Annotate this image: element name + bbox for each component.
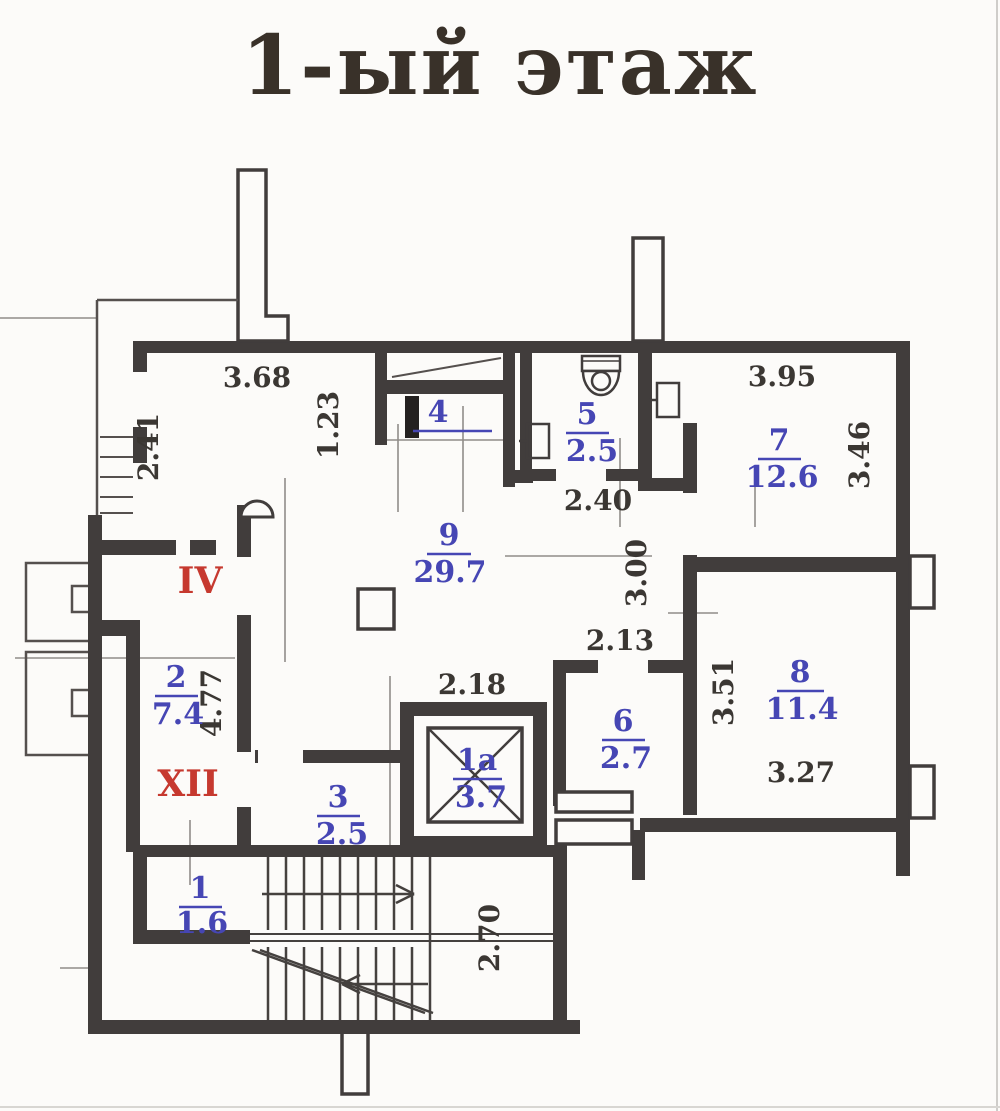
svg-text:12.6: 12.6: [745, 460, 818, 495]
entry-stub: [342, 1034, 368, 1094]
wall: [503, 353, 515, 487]
wall: [88, 1020, 580, 1034]
dimension-label: 2.70: [473, 904, 506, 972]
wall: [532, 469, 556, 481]
room-label-7: 7 12.6: [745, 423, 818, 495]
staircase: [250, 857, 553, 1020]
dimension-label: 3.95: [748, 360, 816, 393]
wall: [520, 351, 532, 481]
balcony-tab: [910, 556, 934, 608]
wall: [638, 351, 652, 490]
exterior-steps: [100, 437, 133, 513]
wall: [896, 341, 910, 876]
zone-label-vestibule: IV: [178, 560, 224, 602]
room-label-6: 6 2.7: [600, 704, 652, 776]
vent-shaft: [556, 820, 632, 844]
scan-edge: [996, 0, 998, 1111]
room-label-8: 8 11.4: [765, 655, 838, 727]
svg-text:4: 4: [428, 395, 449, 430]
column: [358, 589, 394, 629]
floor-plan-page: 1-ый этаж: [0, 0, 1000, 1111]
svg-text:2.7: 2.7: [600, 741, 652, 776]
dimension-label: 1.23: [312, 391, 345, 459]
svg-text:3.7: 3.7: [455, 780, 507, 815]
room-label-3: 3 2.5: [316, 780, 368, 852]
wall: [100, 540, 176, 555]
dimension-label: 3.68: [223, 361, 291, 394]
wall: [190, 540, 216, 555]
dimension-label: 2.18: [438, 668, 506, 701]
wall: [640, 818, 908, 832]
room-label-1: 1 1.6: [176, 871, 228, 941]
floor-plan-drawing: 3.68 1.23 2.41 3.95 3.46 2.40 3.00 2.13 …: [0, 0, 1000, 1111]
chimney-shaft: [238, 170, 288, 341]
dimension-label: 3.46: [843, 421, 876, 489]
wall: [375, 353, 387, 445]
wall: [553, 845, 567, 1034]
toilet-icon: [582, 356, 620, 395]
wall: [387, 380, 505, 394]
dimension-label: 3.27: [767, 756, 835, 789]
room-label-9: 9 29.7: [413, 518, 486, 590]
wall: [553, 660, 566, 806]
svg-text:7.4: 7.4: [152, 697, 204, 732]
dimension-label: 2.13: [586, 624, 654, 657]
svg-text:6: 6: [613, 704, 634, 739]
dimension-label: 2.41: [132, 413, 165, 481]
svg-text:29.7: 29.7: [413, 555, 486, 590]
dimension-label: 3.00: [620, 539, 653, 607]
svg-text:8: 8: [790, 655, 811, 690]
radiator-icon: [657, 383, 679, 417]
wall: [683, 423, 697, 815]
svg-text:1а: 1а: [457, 743, 497, 778]
balcony-tab: [910, 766, 934, 818]
svg-text:1: 1: [190, 871, 211, 906]
dimension-label: 3.51: [707, 658, 740, 726]
door-arc: [241, 501, 273, 517]
svg-text:9: 9: [439, 518, 460, 553]
svg-text:2: 2: [166, 660, 187, 695]
room-label-5: 5 2.5: [566, 397, 618, 469]
wall: [133, 845, 147, 944]
stair-direction-arrow-down: [342, 975, 428, 993]
wall: [126, 620, 140, 852]
wall: [632, 830, 645, 880]
svg-text:2.5: 2.5: [316, 817, 368, 852]
room-label-4: 4: [413, 395, 492, 431]
svg-text:3: 3: [328, 780, 349, 815]
svg-text:11.4: 11.4: [765, 692, 838, 727]
svg-text:5: 5: [577, 397, 598, 432]
svg-text:1.6: 1.6: [176, 906, 228, 941]
scan-edge: [0, 1106, 1000, 1108]
svg-text:2.5: 2.5: [566, 434, 618, 469]
wall: [606, 469, 638, 481]
vent-shaft: [556, 792, 632, 812]
wall: [88, 515, 102, 1034]
chimney-shaft: [633, 238, 663, 341]
svg-text:7: 7: [769, 423, 790, 458]
dimension-label: 2.40: [564, 484, 632, 517]
wall: [697, 557, 908, 572]
zone-label-corridor: XII: [157, 763, 219, 805]
